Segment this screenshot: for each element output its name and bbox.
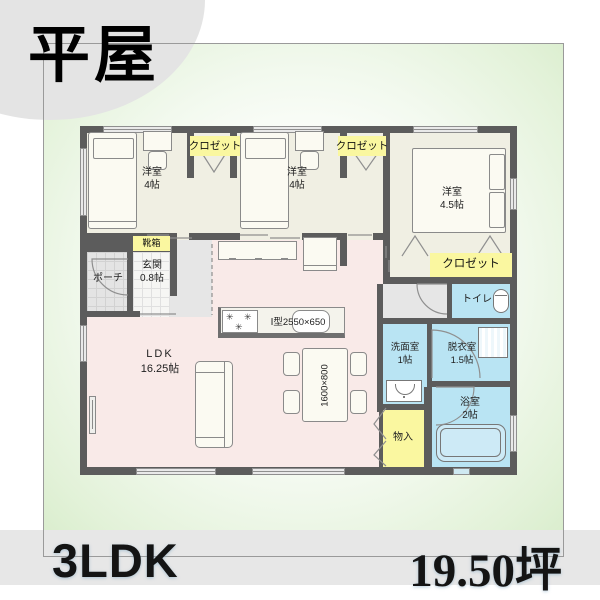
dining-table-text: 1600×800 [320, 364, 331, 407]
room-name: LDK [146, 348, 173, 360]
storage-label-text: 物入 [393, 432, 413, 443]
room-name: 洗面室 [391, 342, 420, 353]
badge-title: 平屋 [28, 4, 160, 94]
closet-label: クロゼット [338, 136, 386, 156]
bath-label: 浴室 2帖 [440, 396, 500, 422]
footer-area-text: 19.50坪 [409, 531, 562, 600]
room-name: 浴室 [460, 397, 480, 408]
room-size: 4帖 [289, 180, 305, 191]
washroom-label: 洗面室 1帖 [375, 341, 435, 367]
sliding-door-mark [386, 246, 389, 272]
toilet-label: トイレ [452, 293, 502, 306]
closet-label: クロゼット [430, 253, 512, 277]
storage-label: 物入 [373, 431, 433, 444]
room-size: 1帖 [398, 355, 413, 366]
floor-plan: ✳ ✳ ✳ [80, 126, 517, 475]
closet-label-text: クロゼット [442, 259, 500, 271]
room-name: 洋室 [287, 167, 307, 178]
sliding-door-mark [240, 235, 300, 238]
room-label-bedroom3: 洋室 4.5帖 [422, 186, 482, 212]
porch-label-text: ポーチ [93, 273, 123, 284]
entrance-label: 玄関 0.8帖 [122, 259, 182, 285]
room-label-bedroom1: 洋室 4帖 [122, 166, 182, 192]
dressing-label: 脱衣室 1.5帖 [432, 341, 492, 367]
closet-label: クロゼット [190, 136, 240, 156]
room-size: 4帖 [144, 180, 160, 191]
room-size: 2帖 [462, 410, 478, 421]
footer-layout-text: 3LDK [52, 533, 179, 588]
kitchen-type-text: Ⅰ型2550×650 [271, 317, 326, 328]
dining-table-label: 1600×800 [319, 356, 332, 416]
closet-label-text: クロゼット [336, 141, 389, 152]
shoebox-label-text: 靴箱 [142, 239, 160, 248]
toilet-label-text: トイレ [462, 294, 492, 305]
room-name: 脱衣室 [448, 342, 477, 353]
kitchen-type-label: Ⅰ型2550×650 [252, 316, 344, 329]
room-name: 洋室 [442, 187, 462, 198]
room-size: 4.5帖 [440, 200, 464, 211]
ldk-label: LDK 16.25帖 [125, 347, 195, 377]
toilet-hall-door-arc [417, 284, 447, 314]
closet-fold-mark [402, 236, 428, 256]
room-size: 1.5帖 [451, 355, 474, 366]
room-name: 洋室 [142, 167, 162, 178]
shoebox-label: 靴箱 [133, 236, 170, 251]
room-size: 0.8帖 [140, 273, 164, 284]
storage-fold-mark [374, 441, 386, 466]
room-size: 16.25帖 [141, 363, 180, 375]
room-name: 玄関 [142, 260, 162, 271]
closet-label-text: クロゼット [189, 141, 242, 152]
room-label-bedroom2: 洋室 4帖 [267, 166, 327, 192]
